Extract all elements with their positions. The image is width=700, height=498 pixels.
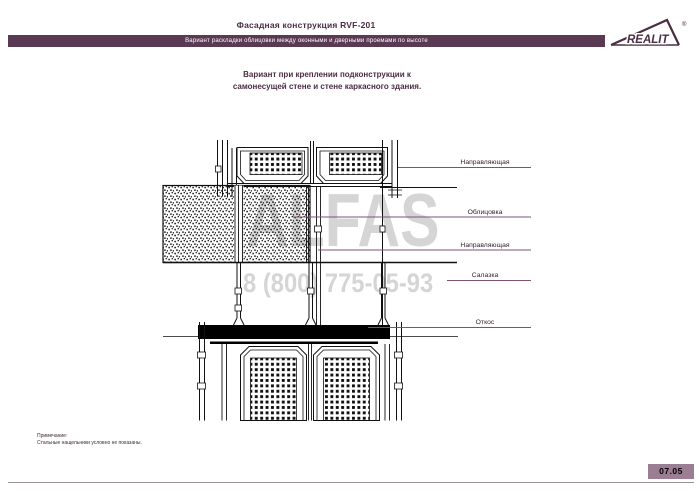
callout-label-reveal: Откос bbox=[439, 318, 531, 327]
frame-lines bbox=[163, 140, 458, 421]
callout-label-cladding: Облицовка bbox=[439, 208, 531, 217]
section-drawing bbox=[0, 0, 700, 498]
footnote: Примечание: Стальные нащельники условно … bbox=[37, 433, 142, 447]
callout-label-slide-bracket: Салазка bbox=[439, 271, 531, 280]
footnote-text: Стальные нащельники условно не показаны. bbox=[37, 440, 142, 447]
catalog-page: Фасадная конструкция RVF-201 Вариант рас… bbox=[0, 0, 700, 498]
footnote-title: Примечание: bbox=[37, 433, 142, 440]
callout-label-rail-top: Направляющая bbox=[439, 158, 531, 167]
callout-label-rail-mid: Направляющая bbox=[439, 241, 531, 250]
